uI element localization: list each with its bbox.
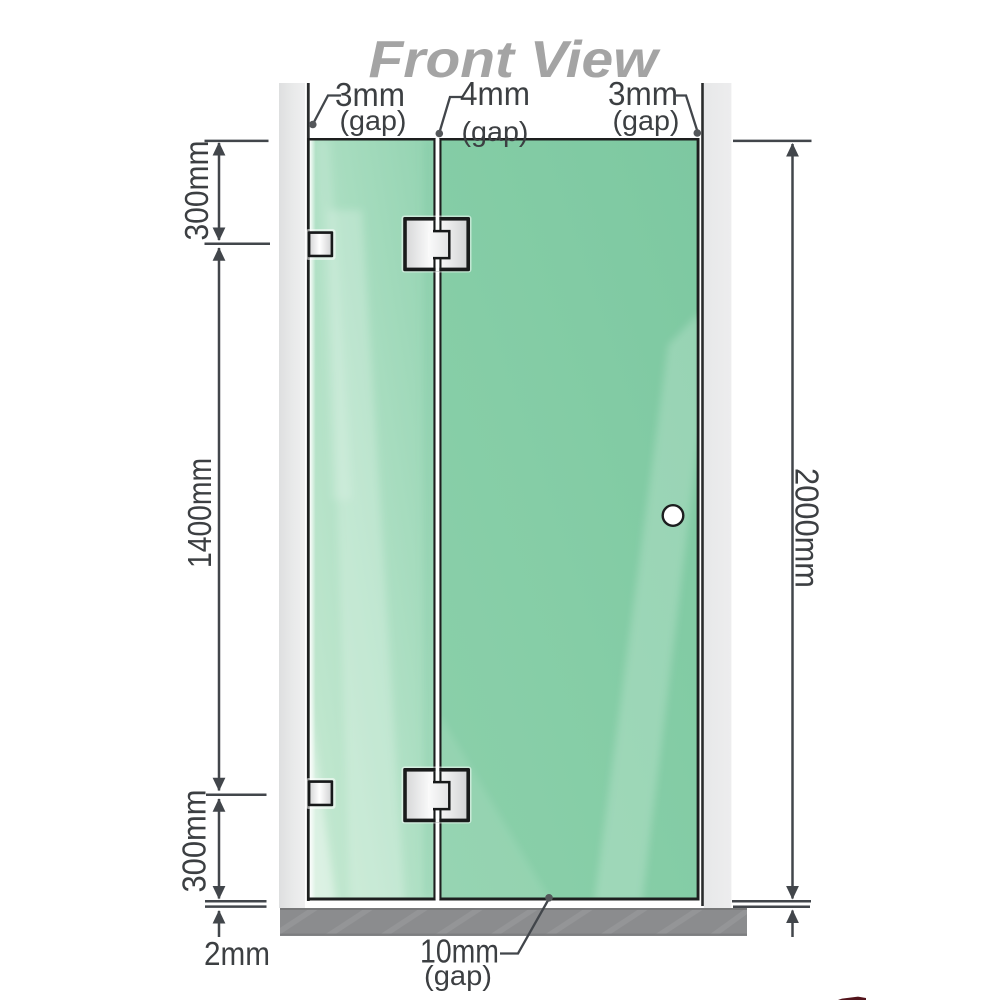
svg-text:300mm: 300mm: [176, 790, 213, 893]
svg-text:(gap): (gap): [424, 960, 492, 991]
svg-text:(gap): (gap): [613, 105, 680, 136]
svg-text:1400mm: 1400mm: [181, 458, 218, 568]
svg-text:300mm: 300mm: [178, 141, 215, 241]
svg-text:4mm: 4mm: [460, 75, 530, 112]
svg-text:2mm: 2mm: [204, 935, 270, 972]
svg-text:(gap): (gap): [462, 116, 529, 147]
svg-text:2000mm: 2000mm: [789, 468, 826, 588]
svg-text:(gap): (gap): [340, 105, 407, 136]
